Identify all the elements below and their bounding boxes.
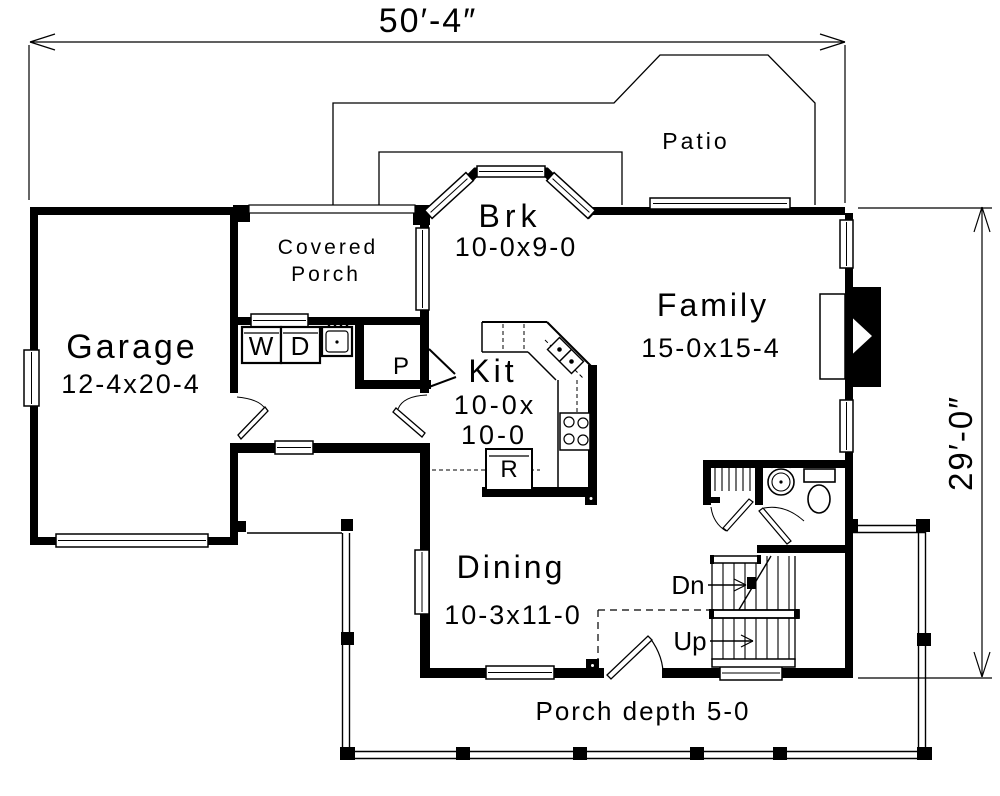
wall-posts <box>585 492 599 672</box>
family-size-label: 15-0x15-4 <box>641 335 781 362</box>
brk-size-label: 10-0x9-0 <box>455 234 578 261</box>
kitchen-size-label-1: 10-0x <box>454 392 537 419</box>
garage-size-label: 12-4x20-4 <box>61 371 201 398</box>
family-window-lower <box>840 400 853 452</box>
closet-hangers <box>715 464 750 491</box>
dimension-width-label: 50′-4″ <box>379 4 477 38</box>
windows <box>24 166 853 680</box>
garage-entry-door <box>237 397 268 439</box>
bath-sink-icon <box>768 464 794 495</box>
brk-west-window <box>416 228 429 310</box>
dining-front-window <box>486 666 554 679</box>
laundry-sink-icon <box>322 324 352 356</box>
dining-size-label: 10-3x11-0 <box>444 602 582 629</box>
stair-down-arrow <box>708 579 746 591</box>
washer-label: W <box>249 333 274 359</box>
patio-outline <box>333 55 815 206</box>
fridge-label: R <box>500 458 517 482</box>
closet-door <box>711 499 753 531</box>
pantry-door <box>429 349 456 387</box>
stove-icon <box>560 413 590 450</box>
covered-porch-label-2: Porch <box>291 264 361 285</box>
family-label: Family <box>657 289 769 321</box>
dimension-depth-label: 29′-0″ <box>942 395 980 491</box>
stair-front-window <box>720 666 782 680</box>
stair-down-label: Dn <box>671 572 704 598</box>
kitchen-entry-door <box>393 395 427 437</box>
garage-label: Garage <box>66 330 197 364</box>
covered-porch-label-1: Covered <box>278 237 378 258</box>
porch-wall-window <box>251 314 308 327</box>
patio-label: Patio <box>662 130 729 153</box>
stair-up-label: Up <box>673 628 706 654</box>
bath-door <box>759 507 804 544</box>
dimension-top <box>29 34 845 203</box>
dining-west-window <box>415 550 429 614</box>
bay-window-center <box>477 166 545 177</box>
garage-door <box>56 534 208 547</box>
porch-depth-label: Porch depth 5-0 <box>535 698 750 724</box>
rear-window <box>650 198 790 209</box>
front-door <box>604 636 663 679</box>
garage-window <box>24 350 39 406</box>
dryer-label: D <box>291 333 310 359</box>
family-window-upper <box>840 220 853 268</box>
dining-label: Dining <box>457 551 566 583</box>
walls <box>30 207 853 678</box>
pantry-label: P <box>393 355 409 379</box>
mudroom-window <box>275 441 313 454</box>
toilet-icon <box>804 469 835 513</box>
staircase <box>708 555 799 667</box>
kitchen-size-label-2: 10-0 <box>461 422 527 449</box>
floor-plan: 50′-4″ 29′-0″ Patio Brk 10-0x9-0 Covered… <box>0 0 1000 796</box>
stair-up-arrow <box>710 635 753 647</box>
bay-window-right <box>547 173 596 219</box>
bay-window-left <box>425 173 474 219</box>
brk-label: Brk <box>479 200 542 232</box>
kitchen-sink-icon <box>547 337 583 373</box>
kitchen-label: Kit <box>468 355 517 387</box>
covered-porch-edge <box>249 205 415 213</box>
